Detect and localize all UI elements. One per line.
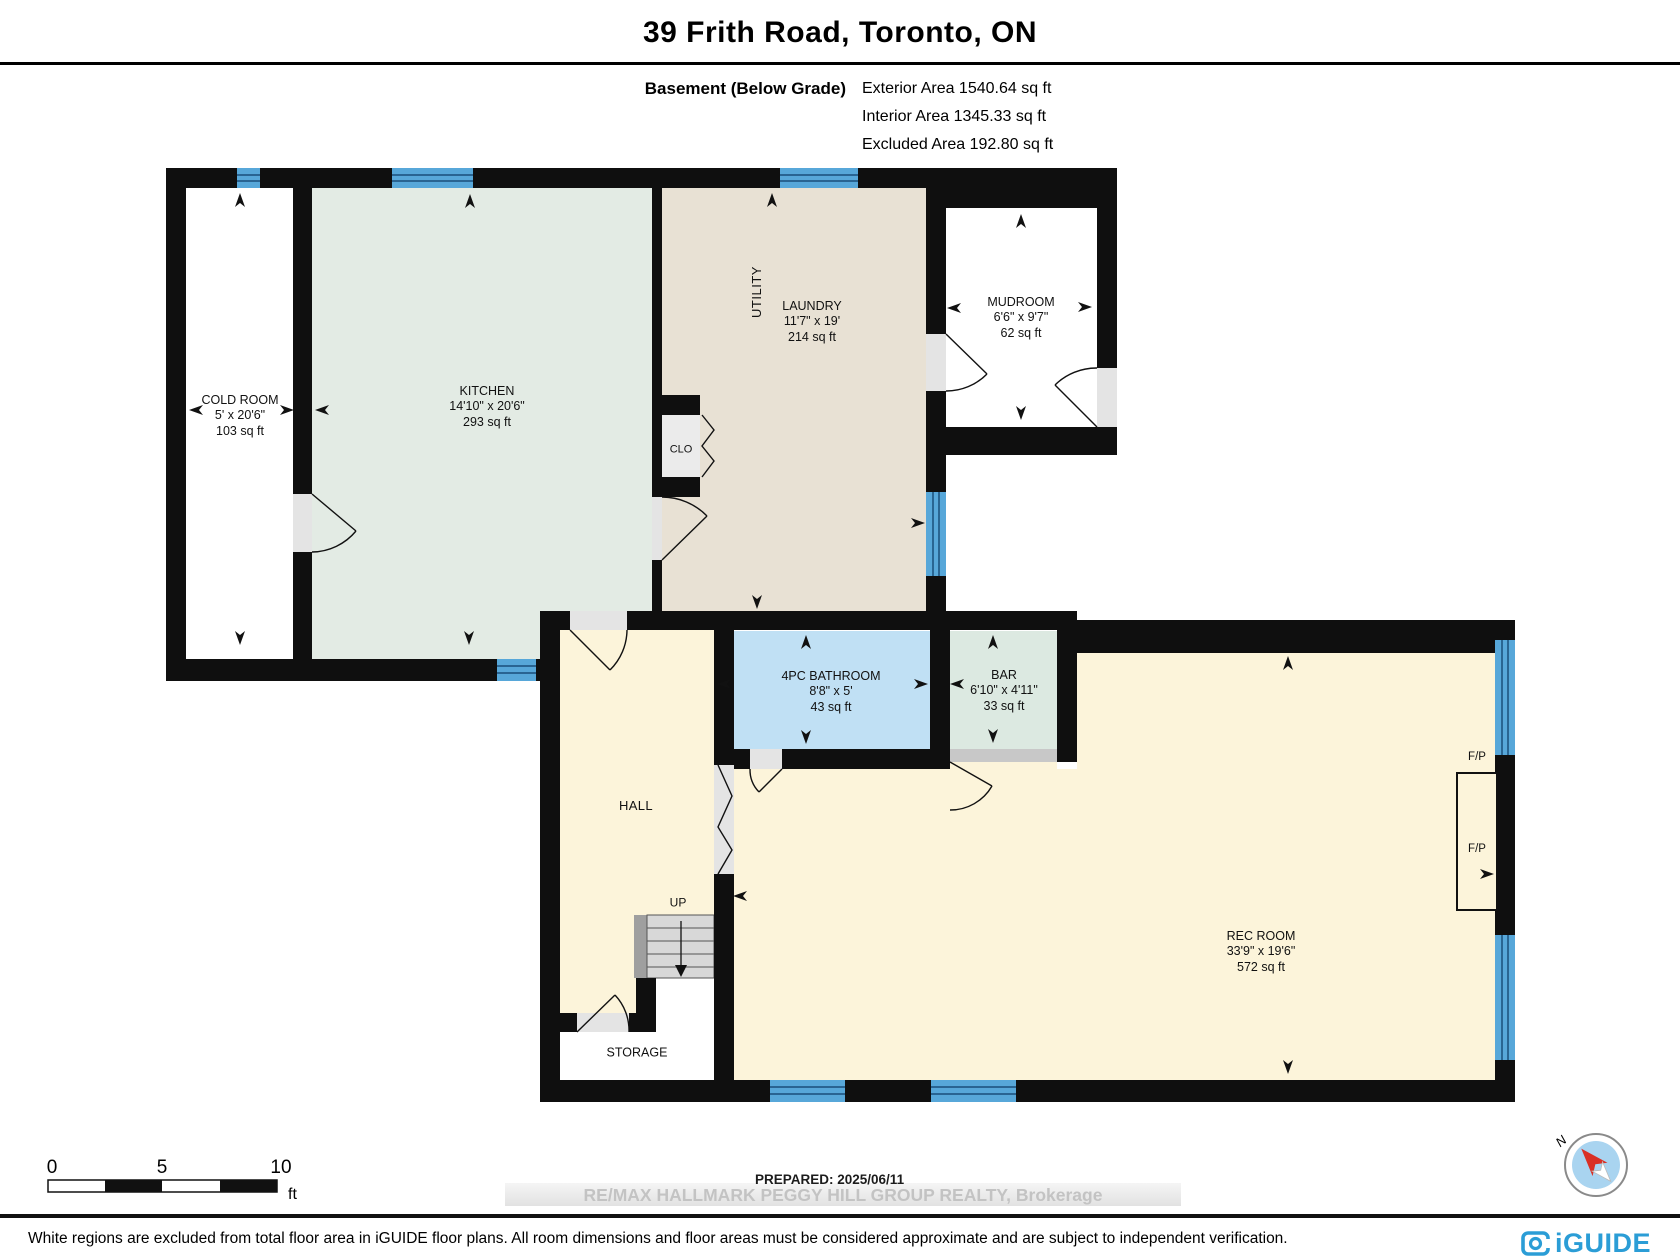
label-storage: STORAGE: [607, 1045, 668, 1060]
label-utility: UTILITY: [749, 266, 765, 318]
disclaimer-text: White regions are excluded from total fl…: [28, 1230, 1288, 1248]
scale-tick-5: 5: [157, 1157, 168, 1179]
door-laundry-mudroom: [926, 334, 946, 391]
label-stairs-up: UP: [670, 896, 687, 911]
label-bathroom: 4PC BATHROOM 8'8" x 5' 43 sq ft: [781, 669, 880, 715]
rec-floor-a: [734, 769, 1495, 1080]
floorplan-page: 39 Frith Road, Toronto, ON Basement (Bel…: [0, 0, 1680, 1258]
window-cold-top: [237, 168, 260, 188]
laundry-floor: [662, 188, 926, 611]
window-rec-bottom-left: [770, 1080, 845, 1102]
label-fireplace-lower: F/P: [1468, 842, 1486, 856]
window-laundry-right: [926, 492, 946, 576]
prepared-date: PREPARED: 2025/06/11: [755, 1172, 904, 1187]
footer-divider: [0, 1214, 1680, 1218]
window-kitchen-top: [392, 168, 473, 188]
window-rec-right-upper: [1495, 640, 1515, 755]
floorplan-drawing: [0, 0, 1680, 1258]
label-bar: BAR 6'10" x 4'11" 33 sq ft: [970, 668, 1038, 714]
window-kitchen-bottom: [497, 659, 536, 681]
door-kitchen-laundry: [652, 497, 662, 560]
label-fireplace-upper: F/P: [1468, 750, 1486, 764]
scale-bar: [48, 1180, 277, 1192]
scale-tick-10: 10: [270, 1157, 291, 1179]
label-cold-room: COLD ROOM 5' x 20'6" 103 sq ft: [201, 393, 278, 439]
door-hall-top: [570, 611, 627, 630]
door-bathroom: [750, 749, 782, 769]
window-laundry-top: [780, 168, 858, 188]
window-rec-bottom-right: [931, 1080, 1016, 1102]
door-hall-rec: [714, 765, 734, 874]
scale-tick-0: 0: [47, 1157, 58, 1179]
brokerage-watermark: RE/MAX HALLMARK PEGGY HILL GROUP REALTY,…: [505, 1185, 1181, 1206]
rec-floor-b: [1077, 653, 1495, 769]
bar-counter: [950, 749, 1057, 762]
door-cold-kitchen: [293, 494, 312, 552]
door-mudroom-exterior: [1097, 368, 1117, 427]
label-hall: HALL: [619, 798, 653, 814]
staircase: [634, 915, 714, 978]
label-closet: CLO: [670, 443, 693, 456]
iguide-logo-text: iGUIDE: [1555, 1230, 1651, 1257]
door-storage: [577, 1013, 629, 1032]
label-mudroom: MUDROOM 6'6" x 9'7" 62 sq ft: [987, 295, 1054, 341]
label-rec-room: REC ROOM 33'9" x 19'6" 572 sq ft: [1227, 929, 1296, 975]
compass-rose: [1565, 1134, 1627, 1196]
scale-unit: ft: [288, 1186, 297, 1204]
iguide-logo: iGUIDE: [1520, 1229, 1651, 1258]
understair-storage-floor: [656, 978, 714, 1032]
label-laundry: LAUNDRY 11'7" x 19' 214 sq ft: [782, 299, 842, 345]
iguide-camera-icon: [1520, 1229, 1552, 1258]
label-kitchen: KITCHEN 14'10" x 20'6" 293 sq ft: [449, 384, 525, 430]
window-rec-right-lower: [1495, 935, 1515, 1060]
